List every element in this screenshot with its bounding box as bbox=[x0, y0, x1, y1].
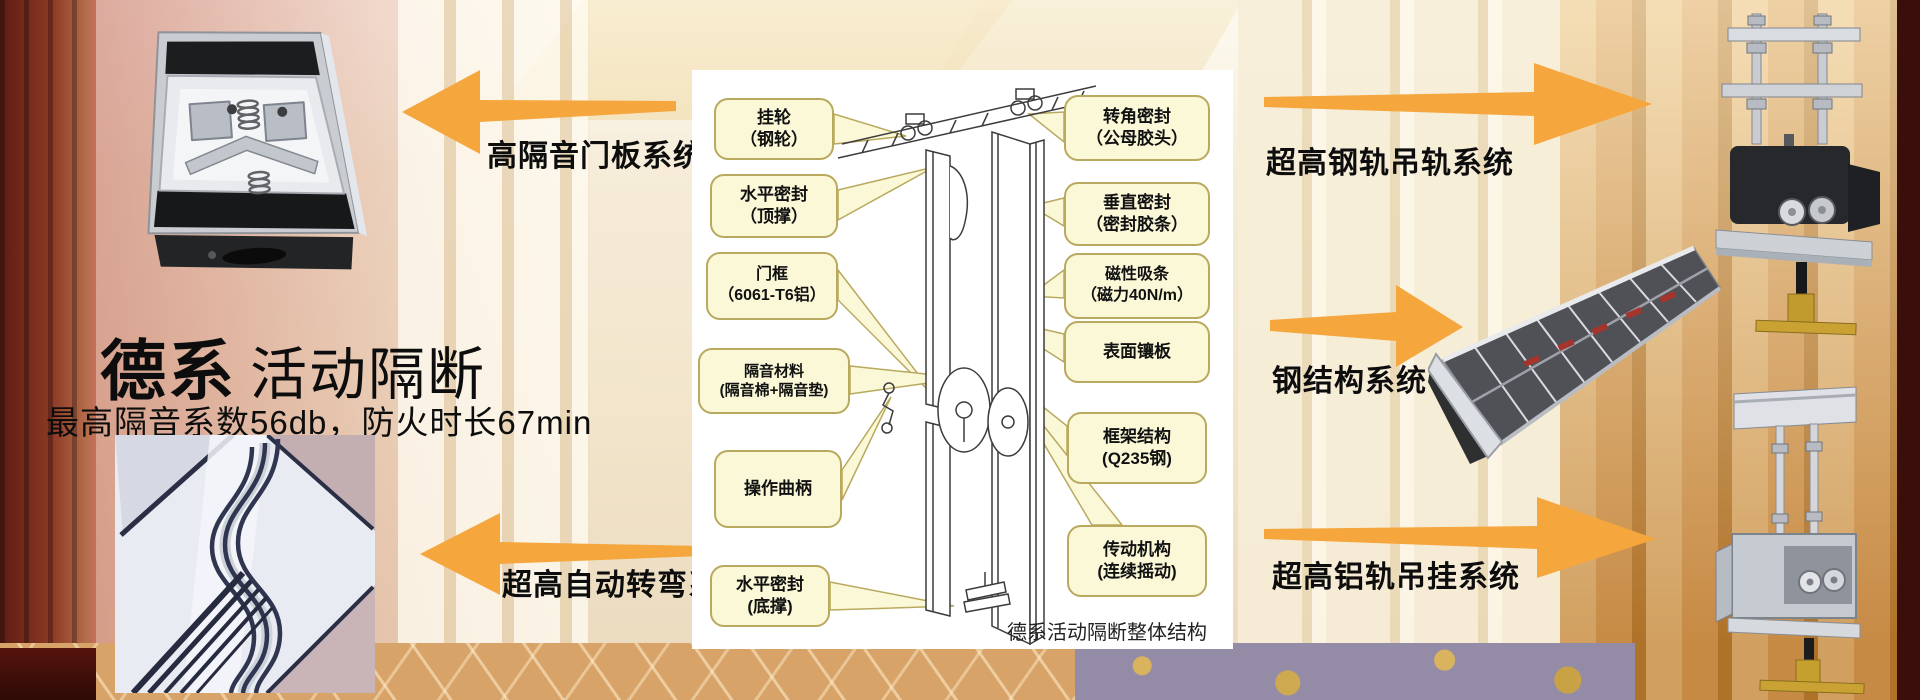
callout-label: 操作曲柄 bbox=[744, 478, 812, 500]
callout-horizontal-seal-top: 水平密封 （顶撑） bbox=[710, 174, 838, 238]
label-steel-structure-system: 钢结构系统 bbox=[1272, 356, 1427, 400]
callout-label: 水平密封 （顶撑） bbox=[740, 184, 808, 228]
callout-operating-crank: 操作曲柄 bbox=[714, 450, 842, 528]
callout-label: 挂轮 （钢轮） bbox=[740, 107, 808, 151]
diagram-panel: 挂轮 （钢轮） 水平密封 （顶撑） 门框 （6061-T6铝） 隔音材料 (隔音… bbox=[692, 70, 1233, 649]
callout-hanging-wheel: 挂轮 （钢轮） bbox=[714, 98, 834, 160]
callout-soundproof-material: 隔音材料 (隔音棉+隔音垫) bbox=[698, 348, 850, 414]
curved-track-image bbox=[115, 435, 375, 693]
callout-label: 框架结构 (Q235钢) bbox=[1102, 426, 1172, 470]
photo-steel-track-carrier bbox=[1700, 6, 1888, 343]
callout-magnetic-strip: 磁性吸条 （磁力40N/m） bbox=[1064, 253, 1210, 319]
label-steel-rail-system: 超高钢轨吊轨系统 bbox=[1266, 138, 1514, 182]
callout-label: 垂直密封 （密封胶条） bbox=[1086, 192, 1188, 236]
callout-surface-panel: 表面镶板 bbox=[1064, 321, 1210, 383]
photo-steel-structure bbox=[1428, 230, 1723, 471]
photo-alu-track-carrier bbox=[1706, 382, 1882, 699]
callout-door-frame: 门框 （6061-T6铝） bbox=[706, 252, 838, 320]
alu-track-carrier-image bbox=[1706, 382, 1882, 694]
partition-drawing bbox=[838, 86, 1098, 644]
photo-curved-track bbox=[115, 435, 375, 698]
callout-label: 隔音材料 (隔音棉+隔音垫) bbox=[720, 362, 829, 401]
arrow-right-steel-rail bbox=[1264, 63, 1652, 145]
callout-label: 水平密封 (底撑) bbox=[736, 574, 804, 618]
callout-vertical-seal: 垂直密封 （密封胶条） bbox=[1064, 182, 1210, 246]
callout-label: 门框 （6061-T6铝） bbox=[718, 265, 826, 307]
callout-label: 传动机构 (连续摇动) bbox=[1097, 539, 1176, 583]
callout-label: 表面镶板 bbox=[1103, 341, 1171, 363]
label-door-panel-system: 高隔音门板系统 bbox=[487, 131, 704, 175]
door-panel-mechanism-image bbox=[115, 8, 390, 296]
callout-corner-seal: 转角密封 （公母胶头） bbox=[1064, 95, 1210, 161]
label-alu-rail-system: 超高铝轨吊挂系统 bbox=[1272, 552, 1520, 596]
callout-transmission: 传动机构 (连续摇动) bbox=[1067, 525, 1207, 597]
steel-structure-image bbox=[1428, 230, 1723, 466]
partition-poster: 高隔音门板系统 超高自动转弯系统 超高钢轨吊轨系统 钢结构系统 超高铝轨吊挂系统… bbox=[0, 0, 1920, 700]
callout-label: 转角密封 （公母胶头） bbox=[1086, 106, 1188, 150]
diagram-caption: 德系活动隔断整体结构 bbox=[992, 616, 1222, 645]
steel-track-carrier-image bbox=[1700, 6, 1888, 338]
callout-label: 磁性吸条 （磁力40N/m） bbox=[1081, 265, 1193, 307]
callout-frame-structure: 框架结构 (Q235钢) bbox=[1067, 412, 1207, 484]
callout-horizontal-seal-bottom: 水平密封 (底撑) bbox=[710, 565, 830, 627]
photo-door-panel-mechanism bbox=[115, 8, 390, 301]
